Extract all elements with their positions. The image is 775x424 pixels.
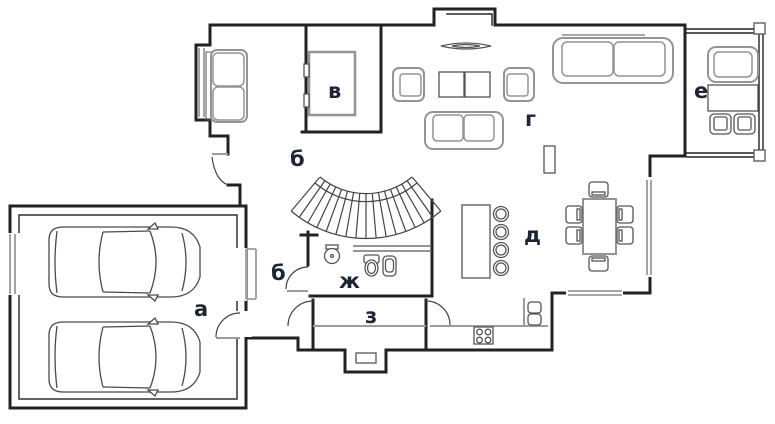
room-label-garage: а xyxy=(194,297,208,321)
door-arc-entry-side xyxy=(212,157,228,185)
living-armchair-right xyxy=(504,68,534,101)
door-arc-vestibule-left xyxy=(288,301,313,326)
living-armchair-left xyxy=(393,68,424,101)
terrace-table xyxy=(708,85,758,111)
room-label-vestibule: з xyxy=(365,304,377,328)
porch-step xyxy=(356,353,376,363)
sink-icon xyxy=(528,314,541,325)
window-hall-upper xyxy=(199,48,204,117)
room-label-hall-upper: б xyxy=(290,147,305,171)
fireplace xyxy=(441,43,491,49)
car-icon xyxy=(49,223,200,301)
terrace-furniture xyxy=(708,47,758,134)
living-sofa xyxy=(553,38,673,83)
floor-plan-drawing: а б б в г д е ж з xyxy=(0,0,775,424)
hall-sofa xyxy=(206,50,247,122)
door-arc-bathroom xyxy=(286,267,308,289)
living-loveseat xyxy=(425,112,503,149)
stair-treads xyxy=(291,177,440,238)
garage-cars xyxy=(49,223,200,396)
closet-door-icon xyxy=(304,94,309,107)
kitchen-island xyxy=(462,205,509,278)
curved-staircase xyxy=(291,177,441,251)
room-label-dining: д xyxy=(524,223,541,247)
washbasin-icon xyxy=(325,249,340,264)
floor-plan: а б б в г д е ж з xyxy=(0,0,775,424)
radiator xyxy=(544,146,555,173)
coffee-tables xyxy=(439,72,490,97)
room-label-living: г xyxy=(525,107,536,131)
interior-walls xyxy=(301,14,555,350)
room-label-hall-lower: б xyxy=(271,261,286,285)
terrace-post-icon xyxy=(754,23,765,34)
dining-table xyxy=(583,199,616,254)
terrace-post-icon xyxy=(754,150,765,161)
door-arc-vestibule-right xyxy=(426,301,450,325)
closet-door-icon xyxy=(304,64,309,77)
dining-set xyxy=(566,182,633,271)
bathroom-fixtures xyxy=(325,245,397,276)
stair-landing xyxy=(353,246,432,251)
kitchen-counter xyxy=(430,298,548,344)
car-icon xyxy=(49,318,200,396)
sink-icon xyxy=(528,302,541,313)
room-label-bathroom: ж xyxy=(339,269,360,293)
room-label-closet: в xyxy=(328,79,341,103)
room-label-terrace: е xyxy=(694,79,708,103)
